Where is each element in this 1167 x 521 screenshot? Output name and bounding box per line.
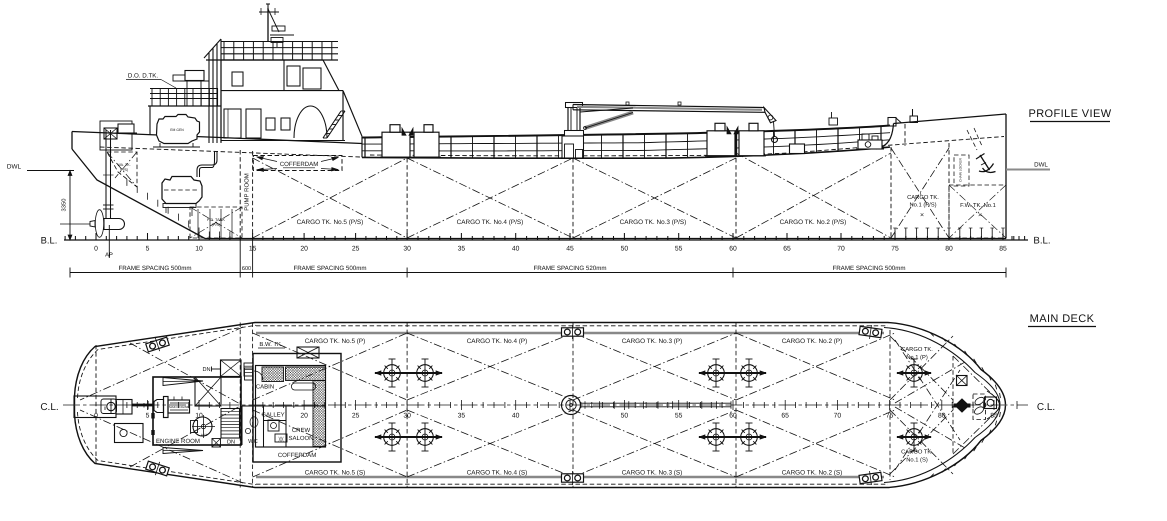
svg-text:FRAME SPACING 520mm: FRAME SPACING 520mm [533, 265, 606, 272]
svg-text:D.O. D.TK.: D.O. D.TK. [128, 73, 159, 80]
svg-text:COFFERDAM: COFFERDAM [280, 161, 319, 168]
svg-text:PUMP ROOM: PUMP ROOM [244, 173, 251, 211]
svg-text:FRAME SPACING 500mm: FRAME SPACING 500mm [118, 265, 191, 272]
svg-text:3350: 3350 [61, 199, 68, 212]
svg-text:75: 75 [891, 246, 899, 253]
svg-text:50: 50 [621, 246, 629, 253]
svg-text:CARGO TK. No.4 (P/S): CARGO TK. No.4 (P/S) [457, 219, 524, 226]
svg-text:AUX: AUX [201, 433, 208, 437]
svg-text:CARGO TK. No.3 (P): CARGO TK. No.3 (P) [622, 338, 683, 345]
svg-text:55: 55 [675, 246, 683, 253]
svg-text:No.1 (P/S): No.1 (P/S) [909, 202, 936, 209]
svg-text:600: 600 [242, 266, 251, 272]
svg-text:35: 35 [458, 246, 466, 253]
svg-text:CARGO TK.: CARGO TK. [907, 194, 939, 201]
svg-text:╳╳: ╳╳ [278, 437, 284, 442]
svg-text:×: × [978, 212, 982, 219]
svg-text:85: 85 [999, 246, 1007, 253]
svg-text:PROFILE VIEW: PROFILE VIEW [1028, 108, 1111, 120]
svg-text:30: 30 [403, 246, 411, 253]
svg-text:70: 70 [834, 413, 842, 420]
svg-text:CARGO TK. No.2 (S): CARGO TK. No.2 (S) [782, 470, 843, 477]
svg-text:(P/S): (P/S) [212, 223, 221, 227]
svg-text:CARGO TK. No.3 (P/S): CARGO TK. No.3 (P/S) [620, 219, 687, 226]
svg-text:(P/S): (P/S) [120, 168, 128, 172]
svg-text:80: 80 [945, 246, 953, 253]
svg-text:35: 35 [458, 413, 466, 420]
svg-text:WC: WC [248, 438, 258, 445]
svg-text:CARGO TK. No.5 (S): CARGO TK. No.5 (S) [305, 470, 366, 477]
svg-text:MAIN ENGINE: MAIN ENGINE [169, 405, 189, 409]
svg-text:FRAME SPACING 500mm: FRAME SPACING 500mm [293, 265, 366, 272]
svg-text:CARGO TK. No.5 (P/S): CARGO TK. No.5 (P/S) [297, 219, 364, 226]
svg-text:CABIN: CABIN [256, 384, 274, 391]
svg-text:50: 50 [621, 413, 629, 420]
svg-text:65: 65 [781, 413, 789, 420]
svg-text:CARGO TK. No.4 (S): CARGO TK. No.4 (S) [467, 470, 528, 477]
svg-text:10: 10 [195, 246, 203, 253]
svg-text:CARGO TK.: CARGO TK. [901, 449, 933, 456]
svg-text:C.L.: C.L. [40, 402, 58, 413]
svg-text:GALLEY: GALLEY [261, 412, 284, 419]
svg-text:CARGO TK. No.2 (P/S): CARGO TK. No.2 (P/S) [780, 219, 847, 226]
svg-text:B.W. TK.: B.W. TK. [259, 341, 282, 348]
svg-text:20: 20 [300, 246, 308, 253]
svg-text:5: 5 [146, 413, 150, 420]
svg-text:C.L.: C.L. [1037, 402, 1055, 413]
svg-text:40: 40 [512, 246, 520, 253]
svg-text:DWL: DWL [7, 164, 22, 171]
svg-text:25: 25 [352, 246, 360, 253]
svg-text:B.L.: B.L. [41, 235, 58, 246]
svg-text:×: × [920, 212, 924, 219]
svg-text:CARGO TK.: CARGO TK. [901, 346, 933, 353]
svg-text:DN: DN [227, 440, 235, 446]
svg-text:MAIN DECK: MAIN DECK [1030, 313, 1095, 325]
svg-text:45: 45 [566, 246, 574, 253]
svg-text:55: 55 [675, 413, 683, 420]
svg-text:CREW: CREW [292, 427, 311, 434]
svg-text:No.1 (P): No.1 (P) [906, 354, 928, 361]
svg-text:CARGO TK. No.2 (P): CARGO TK. No.2 (P) [782, 338, 843, 345]
svg-text:CARGO TK. No.3 (S): CARGO TK. No.3 (S) [622, 470, 683, 477]
svg-text:60: 60 [729, 246, 737, 253]
svg-text:40: 40 [512, 413, 520, 420]
svg-text:B.L.: B.L. [1033, 236, 1050, 247]
svg-text:EM GEN: EM GEN [170, 128, 184, 132]
svg-text:WA. TK.: WA. TK. [117, 163, 130, 167]
svg-text:10: 10 [195, 413, 203, 420]
svg-text:5: 5 [146, 246, 150, 253]
svg-text:0: 0 [94, 246, 98, 253]
svg-text:25: 25 [352, 413, 360, 420]
svg-text:65: 65 [783, 246, 791, 253]
svg-text:CHAIN LOCKER: CHAIN LOCKER [959, 157, 963, 182]
svg-text:20: 20 [300, 413, 308, 420]
svg-text:No.1 (S): No.1 (S) [906, 457, 928, 464]
svg-text:F.W. TK. No.1: F.W. TK. No.1 [960, 203, 996, 209]
svg-text:ENGINE ROOM: ENGINE ROOM [156, 438, 200, 445]
svg-text:CARGO TK. No.5 (P): CARGO TK. No.5 (P) [305, 338, 366, 345]
svg-text:DN: DN [202, 367, 210, 373]
svg-text:70: 70 [837, 246, 845, 253]
svg-text:COFFERDAM: COFFERDAM [278, 452, 317, 459]
svg-text:FRAME SPACING 500mm: FRAME SPACING 500mm [832, 265, 905, 272]
svg-text:SALOON: SALOON [288, 435, 313, 442]
svg-text:DWL: DWL [1034, 162, 1048, 169]
svg-text:CARGO TK. No.4 (P): CARGO TK. No.4 (P) [467, 338, 528, 345]
